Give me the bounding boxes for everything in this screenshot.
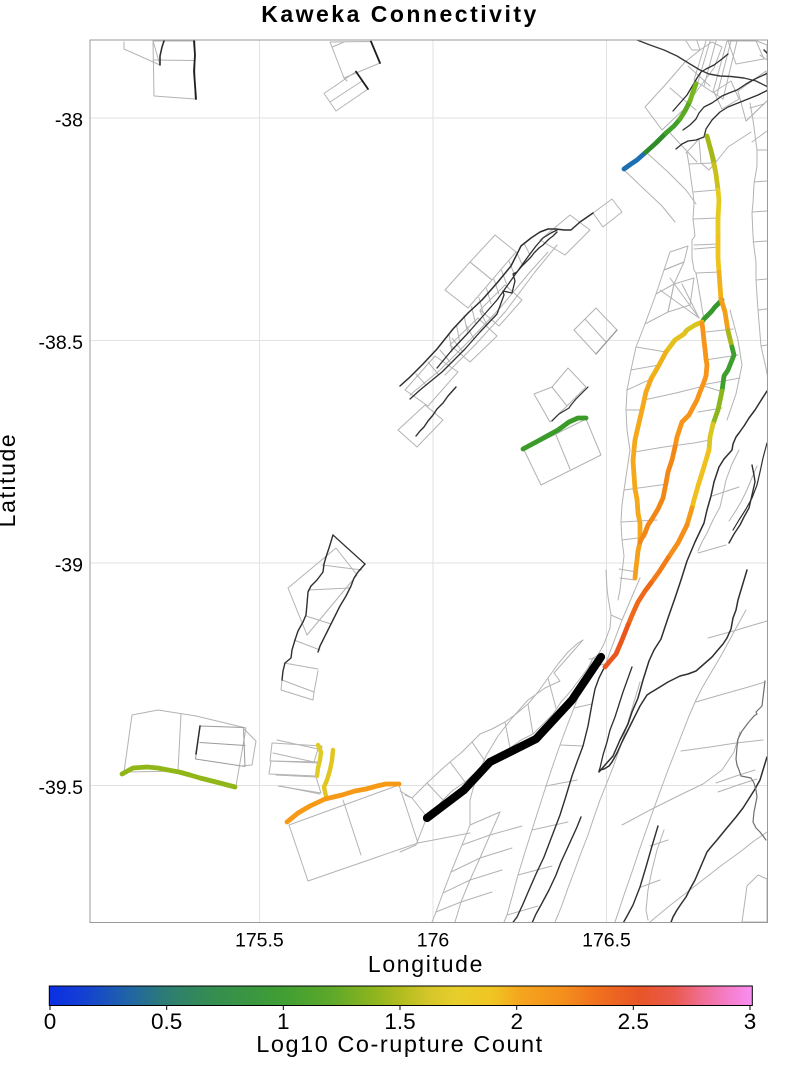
- svg-text:Latitude: Latitude: [0, 433, 20, 528]
- svg-text:176.5: 176.5: [582, 929, 631, 951]
- svg-text:Longitude: Longitude: [368, 951, 484, 977]
- svg-text:175.5: 175.5: [235, 929, 284, 951]
- svg-text:2.5: 2.5: [618, 1009, 649, 1034]
- svg-text:Kaweka Connectivity: Kaweka Connectivity: [261, 1, 539, 27]
- svg-text:0.5: 0.5: [151, 1009, 182, 1034]
- svg-text:-39: -39: [55, 555, 83, 577]
- svg-text:-39.5: -39.5: [39, 777, 84, 799]
- svg-text:0: 0: [44, 1009, 57, 1034]
- svg-text:-38.5: -38.5: [39, 332, 84, 354]
- svg-text:Log10 Co-rupture Count: Log10 Co-rupture Count: [256, 1031, 544, 1057]
- svg-text:-38: -38: [55, 110, 83, 132]
- svg-text:3: 3: [744, 1009, 757, 1034]
- svg-text:176: 176: [417, 929, 450, 951]
